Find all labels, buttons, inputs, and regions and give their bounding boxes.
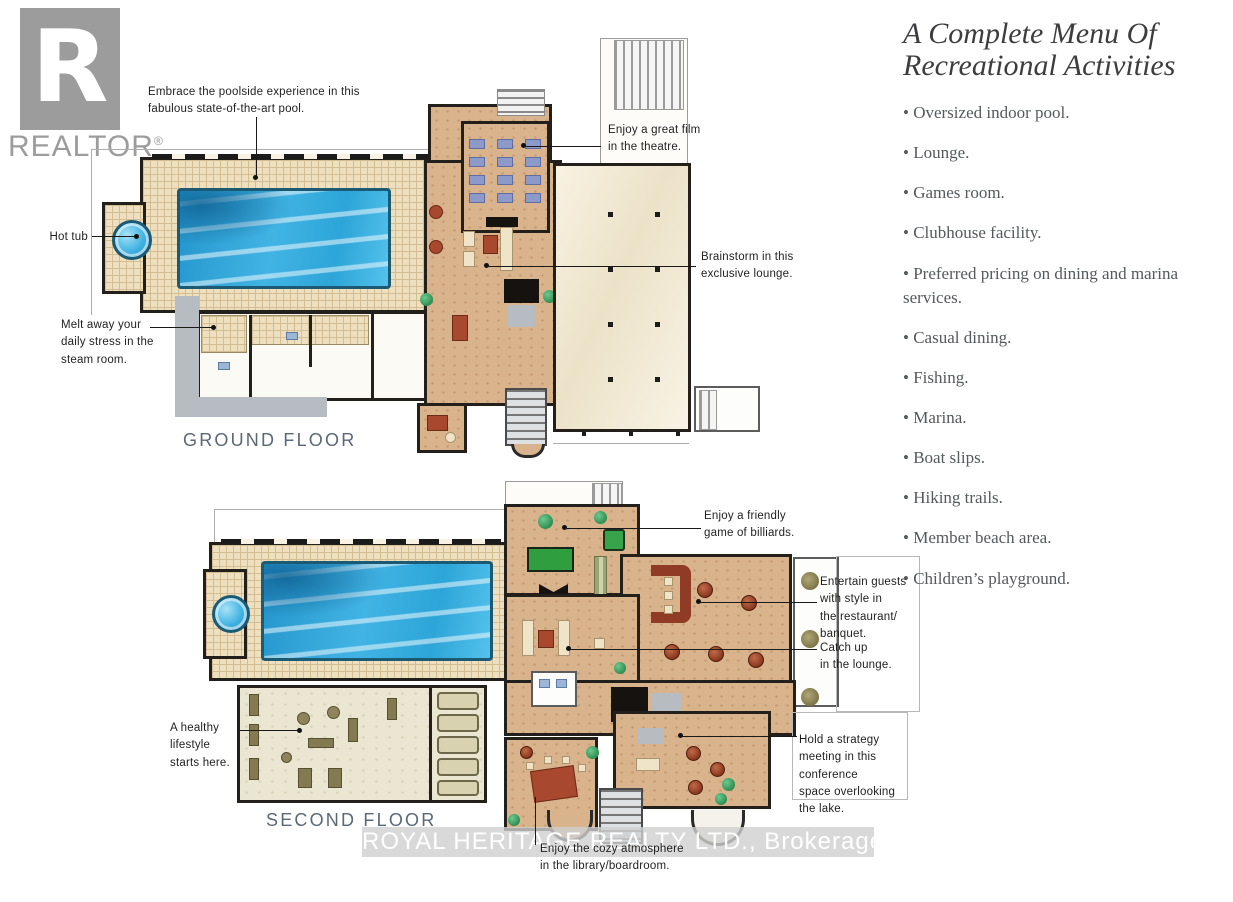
plant: [538, 514, 553, 529]
gym-equipment: [327, 706, 340, 719]
theatre-seat: [497, 193, 513, 203]
dining-table: [741, 595, 757, 611]
leader-line: [535, 797, 536, 845]
theatre-seat: [525, 175, 541, 185]
column-dot: [608, 267, 613, 272]
second-floor-label: SECOND FLOOR: [266, 810, 436, 831]
activities-list-item: Oversized indoor pool.: [903, 101, 1218, 125]
activities-menu: A Complete Menu Of Recreational Activiti…: [903, 18, 1218, 607]
exercise-bike: [328, 768, 342, 788]
column-dot: [582, 432, 586, 436]
realtor-brand: REALTOR: [8, 130, 154, 163]
dining-table: [697, 582, 713, 598]
chair: [578, 764, 586, 772]
wall: [309, 315, 312, 367]
gym-equipment: [249, 724, 259, 746]
note-billiards: Enjoy a friendly game of billiards.: [704, 508, 795, 543]
concrete-band: [175, 397, 327, 417]
plant: [614, 662, 626, 674]
patio-outline: [214, 509, 504, 510]
hot-tub: [112, 220, 152, 260]
wall: [371, 311, 374, 401]
note-restaurant: Entertain guests with style in the resta…: [820, 574, 906, 643]
leader-line: [487, 266, 696, 267]
sofa: [500, 227, 513, 271]
note-pool: Embrace the poolside experience in this …: [148, 84, 360, 119]
leader-dot: [211, 325, 216, 330]
realtor-logo-icon: R: [20, 8, 120, 130]
conference-table: [686, 746, 701, 761]
swimming-pool: [177, 188, 391, 289]
chair: [526, 762, 534, 770]
activities-list-item: Boat slips.: [903, 446, 1218, 470]
leader-dot: [297, 728, 302, 733]
boardroom-table: [530, 765, 578, 803]
fixture: [286, 332, 298, 340]
theatre-seat: [525, 139, 541, 149]
plant: [420, 293, 433, 306]
staircase: [505, 388, 547, 446]
table: [429, 205, 443, 219]
note-conference: Hold a strategy meeting in this conferen…: [799, 732, 895, 818]
gym-equipment: [297, 712, 310, 725]
conference-table: [688, 780, 703, 795]
column-dot: [608, 377, 613, 382]
treadmill: [437, 780, 479, 796]
theatre-seat: [469, 193, 485, 203]
theatre-seat: [525, 193, 541, 203]
stool: [664, 591, 673, 600]
leader-line: [256, 117, 257, 178]
porch-steps: [699, 390, 717, 430]
treadmill: [437, 736, 479, 754]
activities-list-item: Casual dining.: [903, 326, 1218, 350]
side-table: [520, 746, 533, 759]
wall: [429, 685, 432, 803]
gym-equipment: [308, 738, 334, 748]
fixture: [539, 679, 550, 688]
leader-line: [569, 649, 817, 650]
column-dot: [629, 432, 633, 436]
patio-set: [801, 630, 819, 648]
activities-list-item: Children’s playground.: [903, 567, 1218, 591]
shaft: [508, 305, 535, 327]
note-lounge: Brainstorm in this exclusive lounge.: [701, 249, 793, 284]
chair: [544, 756, 552, 764]
activities-list-item: Preferred pricing on dining and marina s…: [903, 262, 1218, 310]
chair: [445, 432, 456, 443]
note-theatre: Enjoy a great film in the theatre.: [608, 122, 700, 157]
theatre-seat: [469, 139, 485, 149]
column-dot: [608, 212, 613, 217]
leader-line: [699, 602, 817, 603]
leader-dot: [134, 234, 139, 239]
patio-outline: [91, 149, 92, 315]
window-wall: [221, 539, 501, 544]
note-library: Enjoy the cozy atmosphere in the library…: [540, 841, 684, 876]
patio-outline: [214, 509, 215, 544]
plant: [722, 778, 735, 791]
note-hot-tub: Hot tub: [26, 229, 88, 246]
plant: [586, 746, 599, 759]
activities-menu-title: A Complete Menu Of Recreational Activiti…: [903, 18, 1218, 81]
theatre-seat: [497, 175, 513, 185]
window-wall: [152, 154, 430, 159]
plant: [508, 814, 520, 826]
sofa: [522, 620, 534, 656]
activities-list-item: Hiking trails.: [903, 486, 1218, 510]
fixture: [556, 679, 567, 688]
conference-table: [710, 762, 725, 777]
activities-list-item: Marina.: [903, 406, 1218, 430]
activities-list: Oversized indoor pool. Lounge. Games roo…: [903, 101, 1218, 591]
dining-table: [664, 644, 680, 660]
covered-deck: [553, 163, 691, 432]
leader-line: [92, 236, 136, 237]
theatre-seat: [469, 157, 485, 167]
activities-list-item: Games room.: [903, 181, 1218, 205]
patio-set: [801, 688, 819, 706]
coffee-table: [538, 630, 554, 648]
games-table: [603, 529, 625, 551]
credenza: [638, 728, 664, 744]
registered-mark: ®: [154, 134, 164, 148]
sofa: [463, 231, 475, 247]
wall: [249, 315, 252, 401]
leader-dot: [253, 175, 258, 180]
table: [429, 240, 443, 254]
column-dot: [655, 212, 660, 217]
leader-line: [150, 327, 214, 328]
dining-table: [748, 652, 764, 668]
plant: [715, 793, 727, 805]
side-table: [636, 758, 660, 771]
leader-line: [525, 146, 601, 147]
note-steam-room: Melt away your daily stress in the steam…: [61, 317, 154, 369]
billiard-table: [527, 547, 574, 572]
boardwalk: [614, 40, 684, 110]
armchair: [594, 638, 605, 649]
theatre-screen: [486, 217, 518, 227]
treadmill: [437, 714, 479, 732]
stool: [664, 605, 673, 614]
treadmill: [437, 758, 479, 776]
steam-room: [201, 315, 247, 353]
stool: [664, 577, 673, 586]
gym-equipment: [387, 698, 397, 720]
table: [483, 235, 498, 254]
realtor-logo-text: REALTOR®: [8, 130, 158, 164]
elevator: [504, 279, 539, 303]
activities-list-item: Lounge.: [903, 141, 1218, 165]
treadmill: [437, 692, 479, 710]
bay-window: [511, 444, 545, 458]
gym-equipment: [249, 694, 259, 716]
realtor-logo-letter: R: [31, 8, 108, 125]
patio-outline: [91, 149, 444, 150]
leader-line: [240, 730, 300, 731]
activities-list-item: Fishing.: [903, 366, 1218, 390]
column-dot: [655, 322, 660, 327]
ground-floor-label: GROUND FLOOR: [183, 430, 356, 451]
gym-equipment: [348, 718, 358, 742]
plant: [594, 511, 607, 524]
fixture: [218, 362, 230, 370]
column-dot: [655, 267, 660, 272]
theatre-seat: [497, 139, 513, 149]
page: R REALTOR®: [0, 0, 1233, 902]
gym-equipment: [249, 758, 259, 780]
swimming-pool: [261, 561, 493, 661]
theatre-seat: [469, 175, 485, 185]
exercise-bike: [298, 768, 312, 788]
column-dot: [676, 432, 680, 436]
leader-line: [681, 736, 797, 737]
theatre-seat: [497, 157, 513, 167]
note-gym: A healthy lifestyle starts here.: [170, 720, 230, 772]
activities-list-item: Clubhouse facility.: [903, 221, 1218, 245]
console: [452, 315, 468, 341]
column-dot: [608, 322, 613, 327]
washroom: [531, 671, 577, 707]
theatre-seat: [525, 157, 541, 167]
gym-equipment: [281, 752, 292, 763]
stairs: [497, 89, 545, 116]
patio-set: [801, 572, 819, 590]
chair: [562, 756, 570, 764]
note-lounge: Catch up in the lounge.: [820, 640, 892, 675]
terrace-line: [553, 443, 689, 444]
hot-tub: [212, 595, 250, 633]
leader-line: [565, 528, 701, 529]
activities-list-item: Member beach area.: [903, 526, 1218, 550]
column-dot: [655, 377, 660, 382]
desk: [427, 415, 448, 431]
sofa: [463, 251, 475, 267]
